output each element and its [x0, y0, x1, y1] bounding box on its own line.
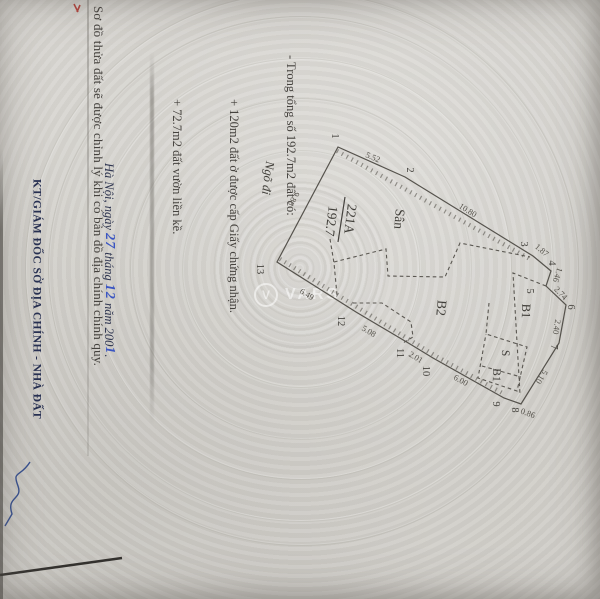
red-mark: [74, 4, 80, 12]
region-label-b1: B1: [519, 303, 534, 318]
vertex-10: 10: [420, 366, 431, 377]
plot-diagram: 221A 192.7 Sân B2 B1 S B1 Ngõ đi 1 2 3 4…: [0, 0, 600, 599]
vertex-4: 4: [546, 260, 557, 266]
edge-9-10: 6.00: [452, 372, 470, 388]
edge-8-9: 0.86: [519, 406, 536, 420]
edge-5-6: 2.74: [552, 284, 570, 302]
interior-dashed-lines: [330, 239, 546, 394]
vertex-11: 11: [394, 348, 405, 358]
edge-11-12: 5.08: [360, 323, 378, 339]
edge-3-4: 1.87: [533, 241, 551, 258]
edge-6-7: 2.40: [551, 319, 563, 335]
vertex-8: 8: [509, 407, 520, 412]
edge-4-5: 1.46: [551, 266, 565, 283]
vertex-12: 12: [335, 316, 346, 327]
vertex-1: 1: [329, 133, 340, 138]
edge-12-13: 6.49: [298, 286, 316, 302]
vertex-13: 13: [254, 264, 265, 275]
region-label-b2: B2: [433, 300, 449, 317]
edge-13-1: 9.88: [286, 190, 302, 208]
vertex-7: 7: [548, 344, 559, 349]
stamp-frame-line: [0, 558, 122, 575]
alley-label: Ngõ đi: [259, 159, 277, 196]
vertex-6: 6: [565, 304, 576, 309]
region-label-b1-small: B1: [490, 368, 502, 382]
vertex-2: 2: [404, 167, 415, 172]
scanned-land-document-photo: { "notes": { "line1": "- Trong tổng số 1…: [0, 0, 600, 599]
signature-squiggle: [5, 462, 30, 526]
vertex-3: 3: [518, 241, 529, 246]
edge-7-8: 5.10: [534, 368, 550, 386]
parcel-number: 221A: [341, 203, 360, 235]
edge-length-labels: 5.52 10.80 1.87 1.46 2.74 2.40 5.10 0.86…: [286, 149, 570, 420]
region-label-s: S: [499, 350, 511, 357]
boundary-tick-marks: [280, 259, 504, 394]
vertex-5: 5: [524, 288, 535, 293]
boundary-tick-marks: [337, 151, 530, 259]
edge-1-2: 5.52: [364, 149, 382, 164]
vertex-9: 9: [490, 401, 501, 406]
region-label-san: Sân: [391, 208, 408, 230]
vertex-labels: 1 2 3 4 5 6 7 8 9 10 11 12 13: [254, 133, 576, 412]
parcel-area: 192.7: [322, 205, 341, 237]
